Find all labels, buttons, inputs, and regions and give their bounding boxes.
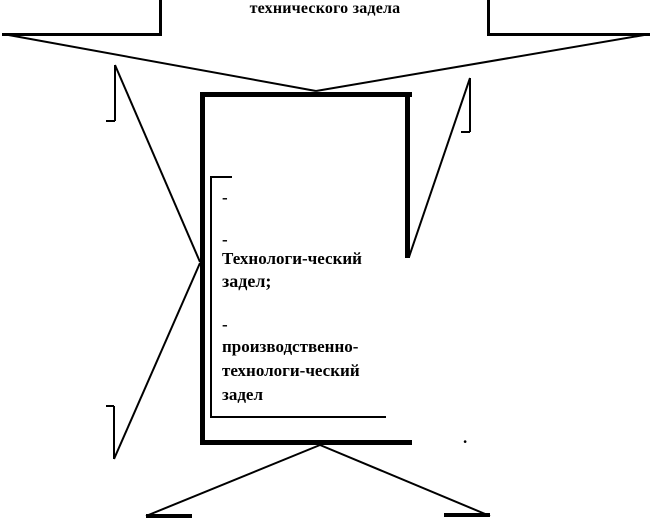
- line-box-to-bottomright: [320, 445, 490, 516]
- line-topright-to-box: [316, 34, 650, 91]
- list-bullet-3: -: [222, 315, 228, 335]
- inner-list-frame: [210, 176, 386, 418]
- line-topleft-to-box: [3, 34, 316, 91]
- list-item-3-line-3: задел: [222, 385, 263, 405]
- bottom-left-box-fragment: [146, 514, 192, 518]
- line-upperright-flag-to-box: [409, 78, 470, 257]
- inner-list-frame-top-segment: [210, 176, 232, 178]
- list-bullet-2: -: [222, 230, 228, 250]
- list-item-2-clipped-line: Технологи-ческий: [222, 249, 362, 264]
- list-item-3-line-1: производственно-: [222, 337, 358, 357]
- bottom-right-box-fragment: [444, 513, 490, 517]
- list-bullet-1: -: [222, 188, 228, 208]
- central-box-right-edge-partial: [405, 92, 410, 258]
- line-box-to-bottomleft: [146, 445, 320, 516]
- list-item-3-line-2: технологи-ческий: [222, 361, 360, 381]
- diagram-canvas: технического задела - - Технологи-ческий…: [0, 0, 650, 519]
- list-item-2-line-2: задел;: [222, 271, 271, 291]
- line-box-to-lowerleft-flag: [114, 263, 200, 459]
- stray-period-dot: .: [463, 428, 467, 448]
- line-upperleft-flag-to-box: [115, 65, 200, 262]
